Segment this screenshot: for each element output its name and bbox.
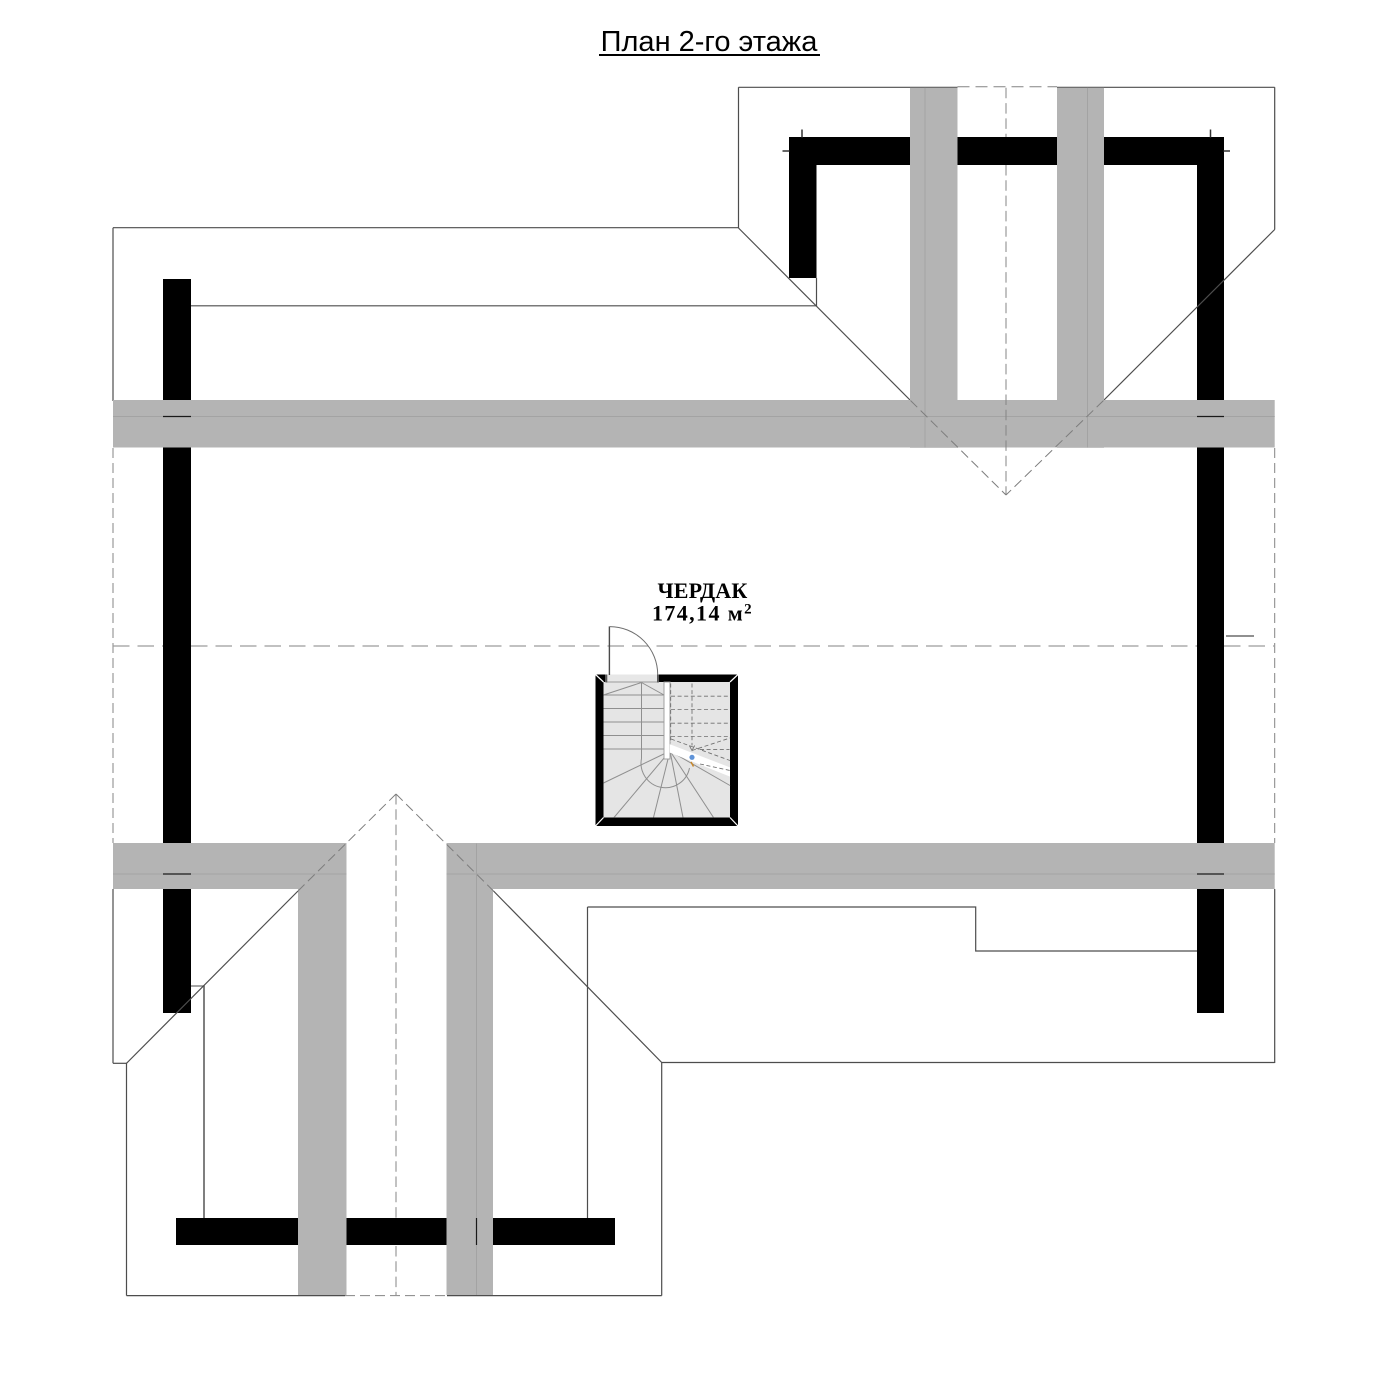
svg-text:174,14 м2: 174,14 м2: [652, 601, 753, 626]
svg-text:План 2-го этажа: План 2-го этажа: [601, 26, 819, 58]
svg-text:ЧЕРДАК: ЧЕРДАК: [657, 578, 747, 603]
